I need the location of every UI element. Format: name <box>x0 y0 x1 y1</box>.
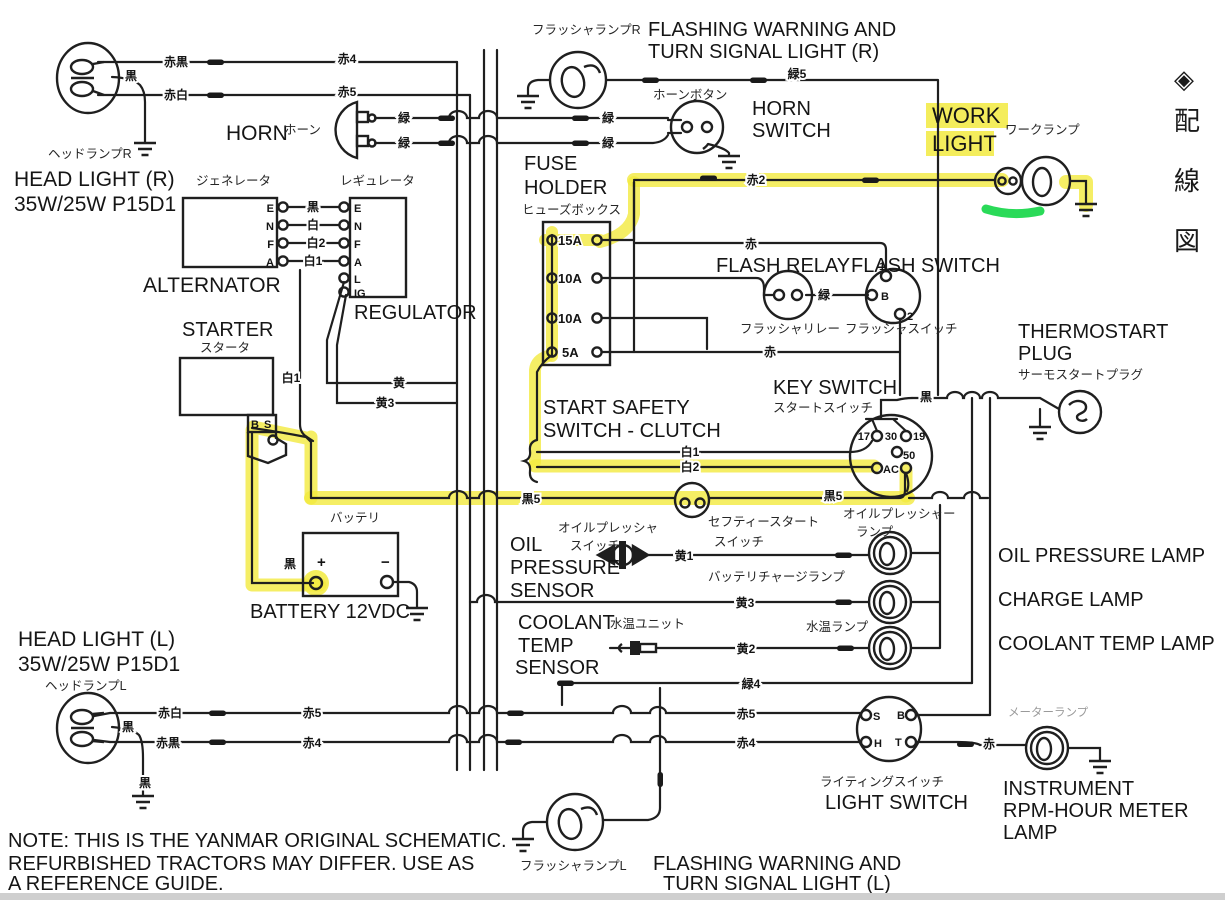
horn-jp-label: ホーン <box>284 123 321 137</box>
starter-symbol <box>180 358 286 463</box>
wire-label: 黒 <box>284 557 296 571</box>
horn-row-2 <box>375 135 668 143</box>
horn-label: HORN <box>226 122 288 145</box>
key-terminal-30: 30 <box>885 431 897 443</box>
margin-char-3: 図 <box>1174 226 1200 256</box>
wire-label: 赤 <box>745 236 757 251</box>
head-light-l-spec-label: 35W/25W P15D1 <box>18 653 180 676</box>
oil-sensor-label-2: PRESSURE <box>510 557 620 579</box>
flasher-l-ground-lead <box>523 822 546 838</box>
fuse-10a-label-2: 10A <box>558 311 582 326</box>
light-switch-terminal-t: T <box>895 737 902 749</box>
regulator-label: REGULATOR <box>354 302 477 324</box>
key-switch-label: KEY SWITCH <box>773 377 897 399</box>
instrument-lamp-symbol <box>1026 727 1068 769</box>
wire-label: 白 <box>307 217 319 232</box>
midori4-row <box>562 683 972 705</box>
flash-relay-label: FLASH RELAY <box>716 255 850 277</box>
fuse-holder-label-1: FUSE <box>524 153 577 175</box>
note-line-2: REFURBISHED TRACTORS MAY DIFFER. USE AS <box>8 853 474 875</box>
thermostart-label-1: THERMOSTART <box>1018 321 1168 343</box>
wire-label: 黒 <box>307 200 319 214</box>
wire-label: 赤 <box>764 344 776 359</box>
highlight-worklight-wire <box>634 180 1086 205</box>
coolant-sensor-jp-label: 水温ユニット <box>610 617 685 631</box>
flasher-l-label-2: TURN SIGNAL LIGHT (L) <box>663 873 891 895</box>
flash-switch-terminal-2: 2 <box>907 311 913 323</box>
charge-lamp-label: CHARGE LAMP <box>998 589 1144 611</box>
wire-label: 赤黒 <box>156 735 180 750</box>
light-switch-terminal-b: B <box>897 710 905 722</box>
fuse-holder-label-2: HOLDER <box>524 177 607 199</box>
wire-label: 緑 <box>602 135 615 150</box>
oil-pressure-lamp-label: OIL PRESSURE LAMP <box>998 545 1205 567</box>
starter-label: STARTER <box>182 319 274 341</box>
wire-label: 緑 <box>398 135 411 150</box>
work-light-label-1: WORK <box>932 103 1001 128</box>
flasher-lamp-r-symbol <box>550 52 606 108</box>
charge-lamp-symbol <box>869 581 911 623</box>
instrument-lamp-label-3: LAMP <box>1003 822 1057 844</box>
regulator-symbol <box>339 198 406 297</box>
alternator-jp-label: ジェネレータ <box>196 174 271 188</box>
coolant-temp-lamp-symbol <box>869 627 911 669</box>
wire-label: 白1 <box>282 370 301 385</box>
wire-label: 黒 <box>125 69 137 83</box>
instrument-ground-lead <box>1068 748 1100 760</box>
reg-pin-e: E <box>354 203 361 215</box>
battery-minus: − <box>381 554 390 571</box>
horn-symbol <box>336 102 376 158</box>
horn-row-1 <box>375 111 668 118</box>
alt-pin-a: A <box>266 257 274 269</box>
key-terminal-19: 19 <box>913 431 925 443</box>
reg-pin-f: F <box>354 239 361 251</box>
flash-relay-jp-label: フラッシャリレー <box>740 322 840 336</box>
oil-sensor-label-3: SENSOR <box>510 580 594 602</box>
flasher-l-jp-label: フラッシャランプL <box>520 859 627 873</box>
wire-label: 緑 <box>818 287 831 302</box>
wire-label: 黄2 <box>737 641 756 656</box>
thermostart-label-2: PLUG <box>1018 343 1072 365</box>
starter-terminal-s: S <box>264 419 271 431</box>
oil-lamp-jp-label-1: オイルプレッシャー <box>843 507 956 521</box>
alt-pin-f: F <box>267 239 274 251</box>
fuse10a-row3 <box>602 318 707 349</box>
light-switch-symbol <box>857 697 921 761</box>
alt-pin-e: E <box>267 203 274 215</box>
horn-switch-label-1: HORN <box>752 98 811 120</box>
shiro1-row <box>537 441 872 452</box>
wire-label: 黒 <box>920 390 932 404</box>
horn-switch-label-2: SWITCH <box>752 120 831 142</box>
wire-label: 赤白 <box>164 87 188 102</box>
wire-label: 緑5 <box>788 66 807 81</box>
head-light-r-jp-label: ヘッドランプR <box>48 147 132 161</box>
wire-label: 赤白 <box>158 705 182 720</box>
safety-start-jp-label-1: セフティースタート <box>708 515 819 529</box>
green-marker-underline <box>986 209 1040 214</box>
fuse-holder-jp-label: ヒューズボックス <box>522 202 621 217</box>
note-line-3: A REFERENCE GUIDE. <box>8 873 224 895</box>
scan-bottom-strip <box>0 893 1225 900</box>
reg-pin-ig: IG <box>354 288 366 300</box>
safety-start-jp-label-2: スイッチ <box>714 535 764 549</box>
horn-switch-symbol <box>671 101 723 153</box>
oil-sensor-jp-label-1: オイルプレッシャ <box>558 521 658 535</box>
fuse-5a-label: 5A <box>562 345 579 360</box>
margin-char-2: 線 <box>1174 166 1200 196</box>
fuse-10a-label: 10A <box>558 271 582 286</box>
key-switch-jp-label: スタートスイッチ <box>773 401 873 415</box>
key-termin al-50: 50 <box>903 450 915 462</box>
coolant-sensor-label-3: SENSOR <box>515 657 599 679</box>
flasher-r-label-2: TURN SIGNAL LIGHT (R) <box>648 41 879 63</box>
flash-switch-terminal-b: B <box>881 291 889 303</box>
wire-label: 赤4 <box>338 51 357 66</box>
oil-sensor-label-1: OIL <box>510 534 542 556</box>
start-safety-label-2: SWITCH - CLUTCH <box>543 420 721 442</box>
wire-label: 緑 <box>602 110 615 125</box>
wire-label: 赤4 <box>303 735 322 750</box>
wire-label: 黄3 <box>736 595 755 610</box>
oil-sensor-jp-label-2: スイッチ <box>570 539 620 553</box>
reg-pin-l: L <box>354 274 361 286</box>
wire-label: 赤 <box>983 736 995 751</box>
coolant-lamp-jp-label: 水温ランプ <box>806 620 869 634</box>
battery-label: BATTERY 12VDC <box>250 601 410 623</box>
wire-label: 白1 <box>681 444 700 459</box>
kuro5-row-ext <box>909 492 988 498</box>
starter-terminal-b: B <box>251 419 259 431</box>
thermostart-jp-label: サーモスタートプラグ <box>1018 368 1143 382</box>
coolant-sensor-label-1: COOLANT <box>518 612 615 634</box>
note-line-1: NOTE: THIS IS THE YANMAR ORIGINAL SCHEMA… <box>8 830 507 852</box>
reg-pin-n: N <box>354 221 362 233</box>
flasher-l-label-1: FLASHING WARNING AND <box>653 853 901 875</box>
reg-pin-a: A <box>354 257 362 269</box>
oil-lamp-jp-label-2: ランプ <box>856 525 894 539</box>
light-switch-jp-label: ライティングスイッチ <box>820 775 944 789</box>
work-light-jp-label: ワークランプ <box>1005 123 1080 137</box>
head-light-r-symbol <box>57 43 119 113</box>
flash-switch-jp-label: フラッシャスイッチ <box>845 322 958 336</box>
wire-label: 白1 <box>304 253 323 268</box>
head-light-l-jp-label: ヘッドランプL <box>45 679 127 693</box>
coolant-temp-lamp-label: COOLANT TEMP LAMP <box>998 633 1215 655</box>
margin-char-1: 配 <box>1174 106 1200 136</box>
flasher-l-right <box>603 688 660 820</box>
head-light-r-spec-label: 35W/25W P15D1 <box>14 193 176 216</box>
component-symbols <box>57 43 1101 850</box>
lamp-return-v <box>911 505 940 648</box>
wire-label: 赤5 <box>303 705 322 720</box>
wire-label: 黒5 <box>522 492 541 506</box>
instrument-lamp-label-2: RPM-HOUR METER <box>1003 800 1189 822</box>
charge-lamp-jp-label: バッテリチャージランプ <box>708 570 845 584</box>
flasher-r-jp-label: フラッシャランプR <box>532 23 641 37</box>
battery-jp-label: バッテリ <box>330 511 380 525</box>
flasher-r-ground-lead <box>528 80 550 95</box>
horn-switch-jp-label: ホーンボタン <box>653 88 727 102</box>
light-switch-terminal-h: H <box>874 738 882 750</box>
wire-label: 白2 <box>681 459 700 474</box>
work-light-symbol <box>995 157 1070 205</box>
wire-label: 赤4 <box>737 735 756 750</box>
wire-label: 白2 <box>307 235 326 250</box>
head-light-l-symbol <box>57 693 119 763</box>
start-safety-label-1: START SAFETY <box>543 397 690 419</box>
wire-label: 緑4 <box>742 676 761 691</box>
wires <box>94 50 1100 838</box>
fuse10a-row2 <box>602 278 774 295</box>
wire-label: 黄3 <box>376 395 395 410</box>
wire-label: 赤5 <box>338 84 357 99</box>
flasher-r-label-1: FLASHING WARNING AND <box>648 19 896 41</box>
flash-switch-label: FLASH SWITCH <box>851 255 1000 277</box>
wire-label: 黒5 <box>824 489 843 503</box>
flasher-lamp-l-symbol <box>547 794 603 850</box>
key-to-thermostart <box>912 392 1059 409</box>
key-terminal-ac: AC <box>883 464 899 476</box>
light-switch-terminal-s: S <box>873 711 880 723</box>
wire-label: 赤黒 <box>164 54 188 69</box>
instrument-lamp-label-1: INSTRUMENT <box>1003 778 1134 800</box>
wire-label: 緑 <box>398 110 411 125</box>
wire-label: 黒 <box>122 720 134 734</box>
wire-label: 黒 <box>139 776 151 790</box>
wire-label: 黄 <box>393 375 405 390</box>
head-light-l-label: HEAD LIGHT (L) <box>18 628 175 651</box>
work-light-label-2: LIGHT <box>932 131 997 156</box>
margin-symbol-icon: ◈ <box>1174 64 1194 94</box>
key-terminal-17: 17 <box>858 431 870 443</box>
light-switch-label: LIGHT SWITCH <box>825 792 968 814</box>
alternator-label: ALTERNATOR <box>143 274 281 297</box>
starter-shiro1-v <box>300 270 313 441</box>
coolant-sensor-label-2: TEMP <box>518 635 574 657</box>
wire-label: 赤5 <box>737 706 756 721</box>
instrument-lamp-jp-label: メーターランプ <box>1008 706 1089 719</box>
wire-label: 黄1 <box>675 548 694 563</box>
fuse-15a-label: 15A <box>558 233 582 248</box>
thermostart-symbol <box>1059 391 1101 433</box>
starter-jp-label: スタータ <box>200 341 250 355</box>
yanmar-wiring-schematic: 赤黒 赤4 赤白 赤5 黒 緑 緑 緑 緑 緑5 赤2 赤 緑 赤 黒 白 白2… <box>0 0 1225 900</box>
battery-plus: + <box>317 554 326 571</box>
flash-switch-terminal-1: 1 <box>879 261 885 273</box>
alt-pin-n: N <box>266 221 274 233</box>
key-switch-symbol <box>850 415 932 497</box>
wire-label: 赤2 <box>747 172 766 187</box>
head-light-r-label: HEAD LIGHT (R) <box>14 168 175 191</box>
regulator-jp-label: レギュレータ <box>340 174 415 188</box>
